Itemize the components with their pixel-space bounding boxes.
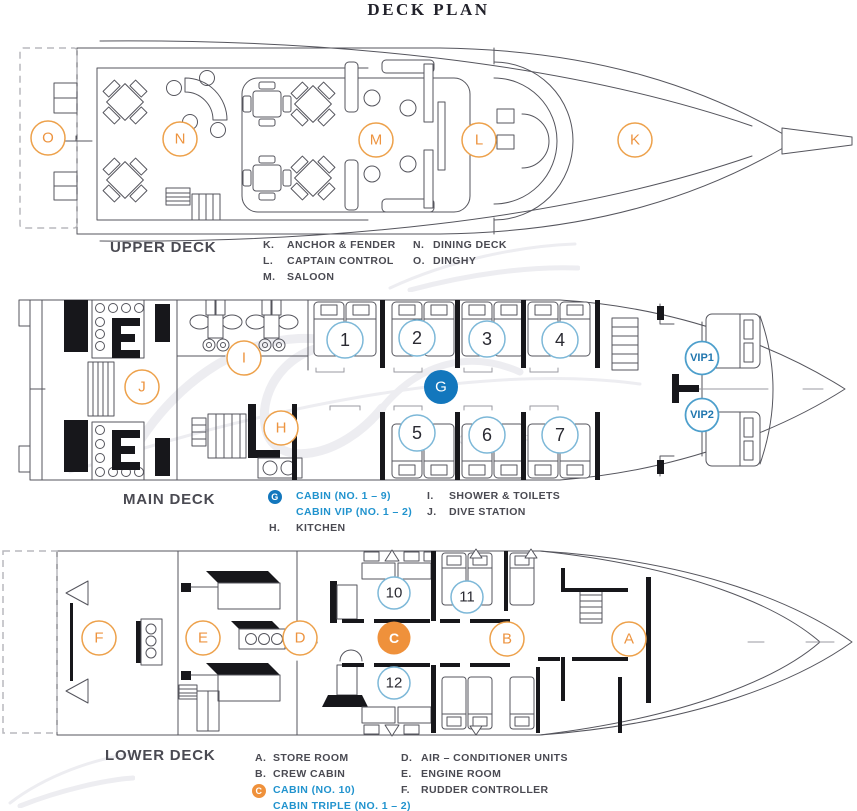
marker-shower-toilets: I — [227, 341, 261, 375]
main-deck-legend-col1: GCABIN (NO. 1 – 9) CABIN VIP (NO. 1 – 2)… — [262, 490, 412, 538]
legend-text: DINING DECK — [433, 239, 507, 251]
svg-text:B: B — [502, 631, 512, 648]
svg-text:VIP1: VIP1 — [690, 352, 714, 364]
svg-text:D: D — [295, 630, 306, 647]
legend-key: H. — [262, 522, 296, 534]
legend-key: A. — [252, 752, 273, 764]
legend-badge-g: G — [268, 490, 282, 504]
marker-cabin-c: C — [378, 622, 411, 655]
svg-text:1: 1 — [340, 330, 350, 350]
svg-text:5: 5 — [412, 423, 422, 443]
svg-text:M: M — [370, 132, 383, 149]
marker-cabin-4: 4 — [542, 322, 578, 358]
legend-key: M. — [263, 271, 287, 283]
upper-deck-plan: O N M L K — [0, 38, 857, 244]
marker-ac-units: D — [283, 621, 317, 655]
legend-badge-c: C — [252, 784, 266, 798]
legend-text: AIR – CONDITIONER UNITS — [421, 752, 568, 764]
svg-text:K: K — [630, 132, 640, 149]
legend-key: I. — [427, 490, 449, 502]
svg-text:E: E — [198, 630, 208, 647]
svg-text:2: 2 — [412, 328, 422, 348]
anchor-winch — [672, 374, 699, 403]
lower-deck-title: LOWER DECK — [105, 747, 216, 764]
legend-text: ANCHOR & FENDER — [287, 239, 396, 251]
svg-text:I: I — [242, 350, 246, 367]
deck-plan-page: DECK PLAN — [0, 0, 857, 811]
legend-key: F. — [401, 784, 421, 796]
svg-text:G: G — [435, 379, 447, 396]
legend-text: DINGHY — [433, 255, 476, 267]
svg-text:7: 7 — [555, 425, 565, 445]
bowsprit — [782, 128, 852, 154]
legend-text: SHOWER & TOILETS — [449, 490, 560, 502]
svg-text:F: F — [94, 630, 103, 647]
svg-text:L: L — [475, 132, 483, 149]
legend-text: KITCHEN — [296, 522, 345, 534]
lower-deck-legend-col2: D.AIR – CONDITIONER UNITS E.ENGINE ROOM … — [401, 752, 568, 800]
marker-rudder: F — [82, 621, 116, 655]
marker-saloon: M — [359, 123, 393, 157]
marker-cabin-2: 2 — [399, 320, 435, 356]
legend-key: K. — [263, 239, 287, 251]
svg-text:H: H — [276, 420, 287, 437]
dining-table — [280, 71, 345, 136]
marker-anchor-fender: K — [618, 123, 652, 157]
svg-text:3: 3 — [482, 329, 492, 349]
upper-deck-title: UPPER DECK — [110, 239, 216, 256]
svg-text:C: C — [389, 630, 399, 646]
dining-table — [243, 156, 291, 200]
svg-text:J: J — [138, 379, 146, 396]
lower-deck-legend-col1: A.STORE ROOM B.CREW CABIN CCABIN (NO. 10… — [252, 752, 411, 811]
marker-dining-deck: N — [163, 122, 197, 156]
legend-text: CABIN VIP (NO. 1 – 2) — [296, 506, 412, 518]
main-deck-plan: B O A R D — [0, 292, 857, 488]
marker-kitchen: H — [264, 411, 298, 445]
legend-text: DIVE STATION — [449, 506, 526, 518]
stern-platform — [3, 551, 57, 733]
svg-text:6: 6 — [482, 425, 492, 445]
marker-vip1: VIP1 — [686, 342, 719, 375]
legend-text: CABIN TRIPLE (NO. 1 – 2) — [273, 800, 411, 811]
marker-crew-cabin: B — [490, 622, 524, 656]
legend-text: CABIN (NO. 10) — [273, 784, 355, 796]
legend-text: SALOON — [287, 271, 334, 283]
svg-text:A: A — [624, 631, 634, 648]
upper-deck-legend-col1: K.ANCHOR & FENDER L.CAPTAIN CONTROL M.SA… — [263, 239, 396, 287]
marker-cabin-1: 1 — [327, 322, 363, 358]
marker-store-room: A — [612, 622, 646, 656]
marker-cabin-3: 3 — [469, 321, 505, 357]
fore-section — [612, 304, 773, 476]
marker-cabin-7: 7 — [542, 417, 578, 453]
dining-table — [243, 82, 291, 126]
upper-deck-legend-col2: N.DINING DECK O.DINGHY — [413, 239, 507, 271]
marker-dive-station: J — [125, 370, 159, 404]
legend-text: CREW CABIN — [273, 768, 345, 780]
marker-dinghy: O — [31, 121, 65, 155]
dining-table — [280, 145, 345, 210]
marker-cabin-10: 10 — [378, 577, 410, 609]
legend-key: L. — [263, 255, 287, 267]
legend-key: J. — [427, 506, 449, 518]
lower-deck-plan: F E D 10 C 12 11 B A — [0, 545, 857, 741]
legend-text: CABIN (NO. 1 – 9) — [296, 490, 391, 502]
svg-text:VIP2: VIP2 — [690, 409, 714, 421]
svg-text:12: 12 — [386, 675, 403, 692]
legend-key: E. — [401, 768, 421, 780]
marker-cabin-6: 6 — [469, 417, 505, 453]
page-title: DECK PLAN — [0, 0, 857, 20]
marker-vip2: VIP2 — [686, 399, 719, 432]
main-deck-title: MAIN DECK — [123, 491, 215, 508]
marker-cabin-g: G — [424, 370, 458, 404]
marker-engine-room: E — [186, 621, 220, 655]
legend-key: D. — [401, 752, 421, 764]
svg-text:O: O — [42, 130, 54, 147]
svg-text:4: 4 — [555, 330, 565, 350]
marker-cabin-5: 5 — [399, 415, 435, 451]
main-deck-legend-col2: I.SHOWER & TOILETS J.DIVE STATION — [427, 490, 560, 522]
legend-key: N. — [413, 239, 433, 251]
legend-text: STORE ROOM — [273, 752, 349, 764]
dining-table — [92, 147, 157, 212]
stairs — [166, 188, 220, 220]
legend-text: CAPTAIN CONTROL — [287, 255, 394, 267]
marker-captain-control: L — [462, 123, 496, 157]
marker-cabin-12: 12 — [378, 667, 410, 699]
legend-key: B. — [252, 768, 273, 780]
legend-key: O. — [413, 255, 433, 267]
legend-text: RUDDER CONTROLLER — [421, 784, 549, 796]
dining-room-wall — [97, 68, 368, 220]
svg-text:N: N — [175, 131, 186, 148]
dining-table — [92, 69, 157, 134]
svg-text:10: 10 — [386, 585, 403, 602]
legend-text: ENGINE ROOM — [421, 768, 501, 780]
marker-cabin-11: 11 — [451, 581, 483, 613]
svg-text:11: 11 — [459, 589, 475, 606]
